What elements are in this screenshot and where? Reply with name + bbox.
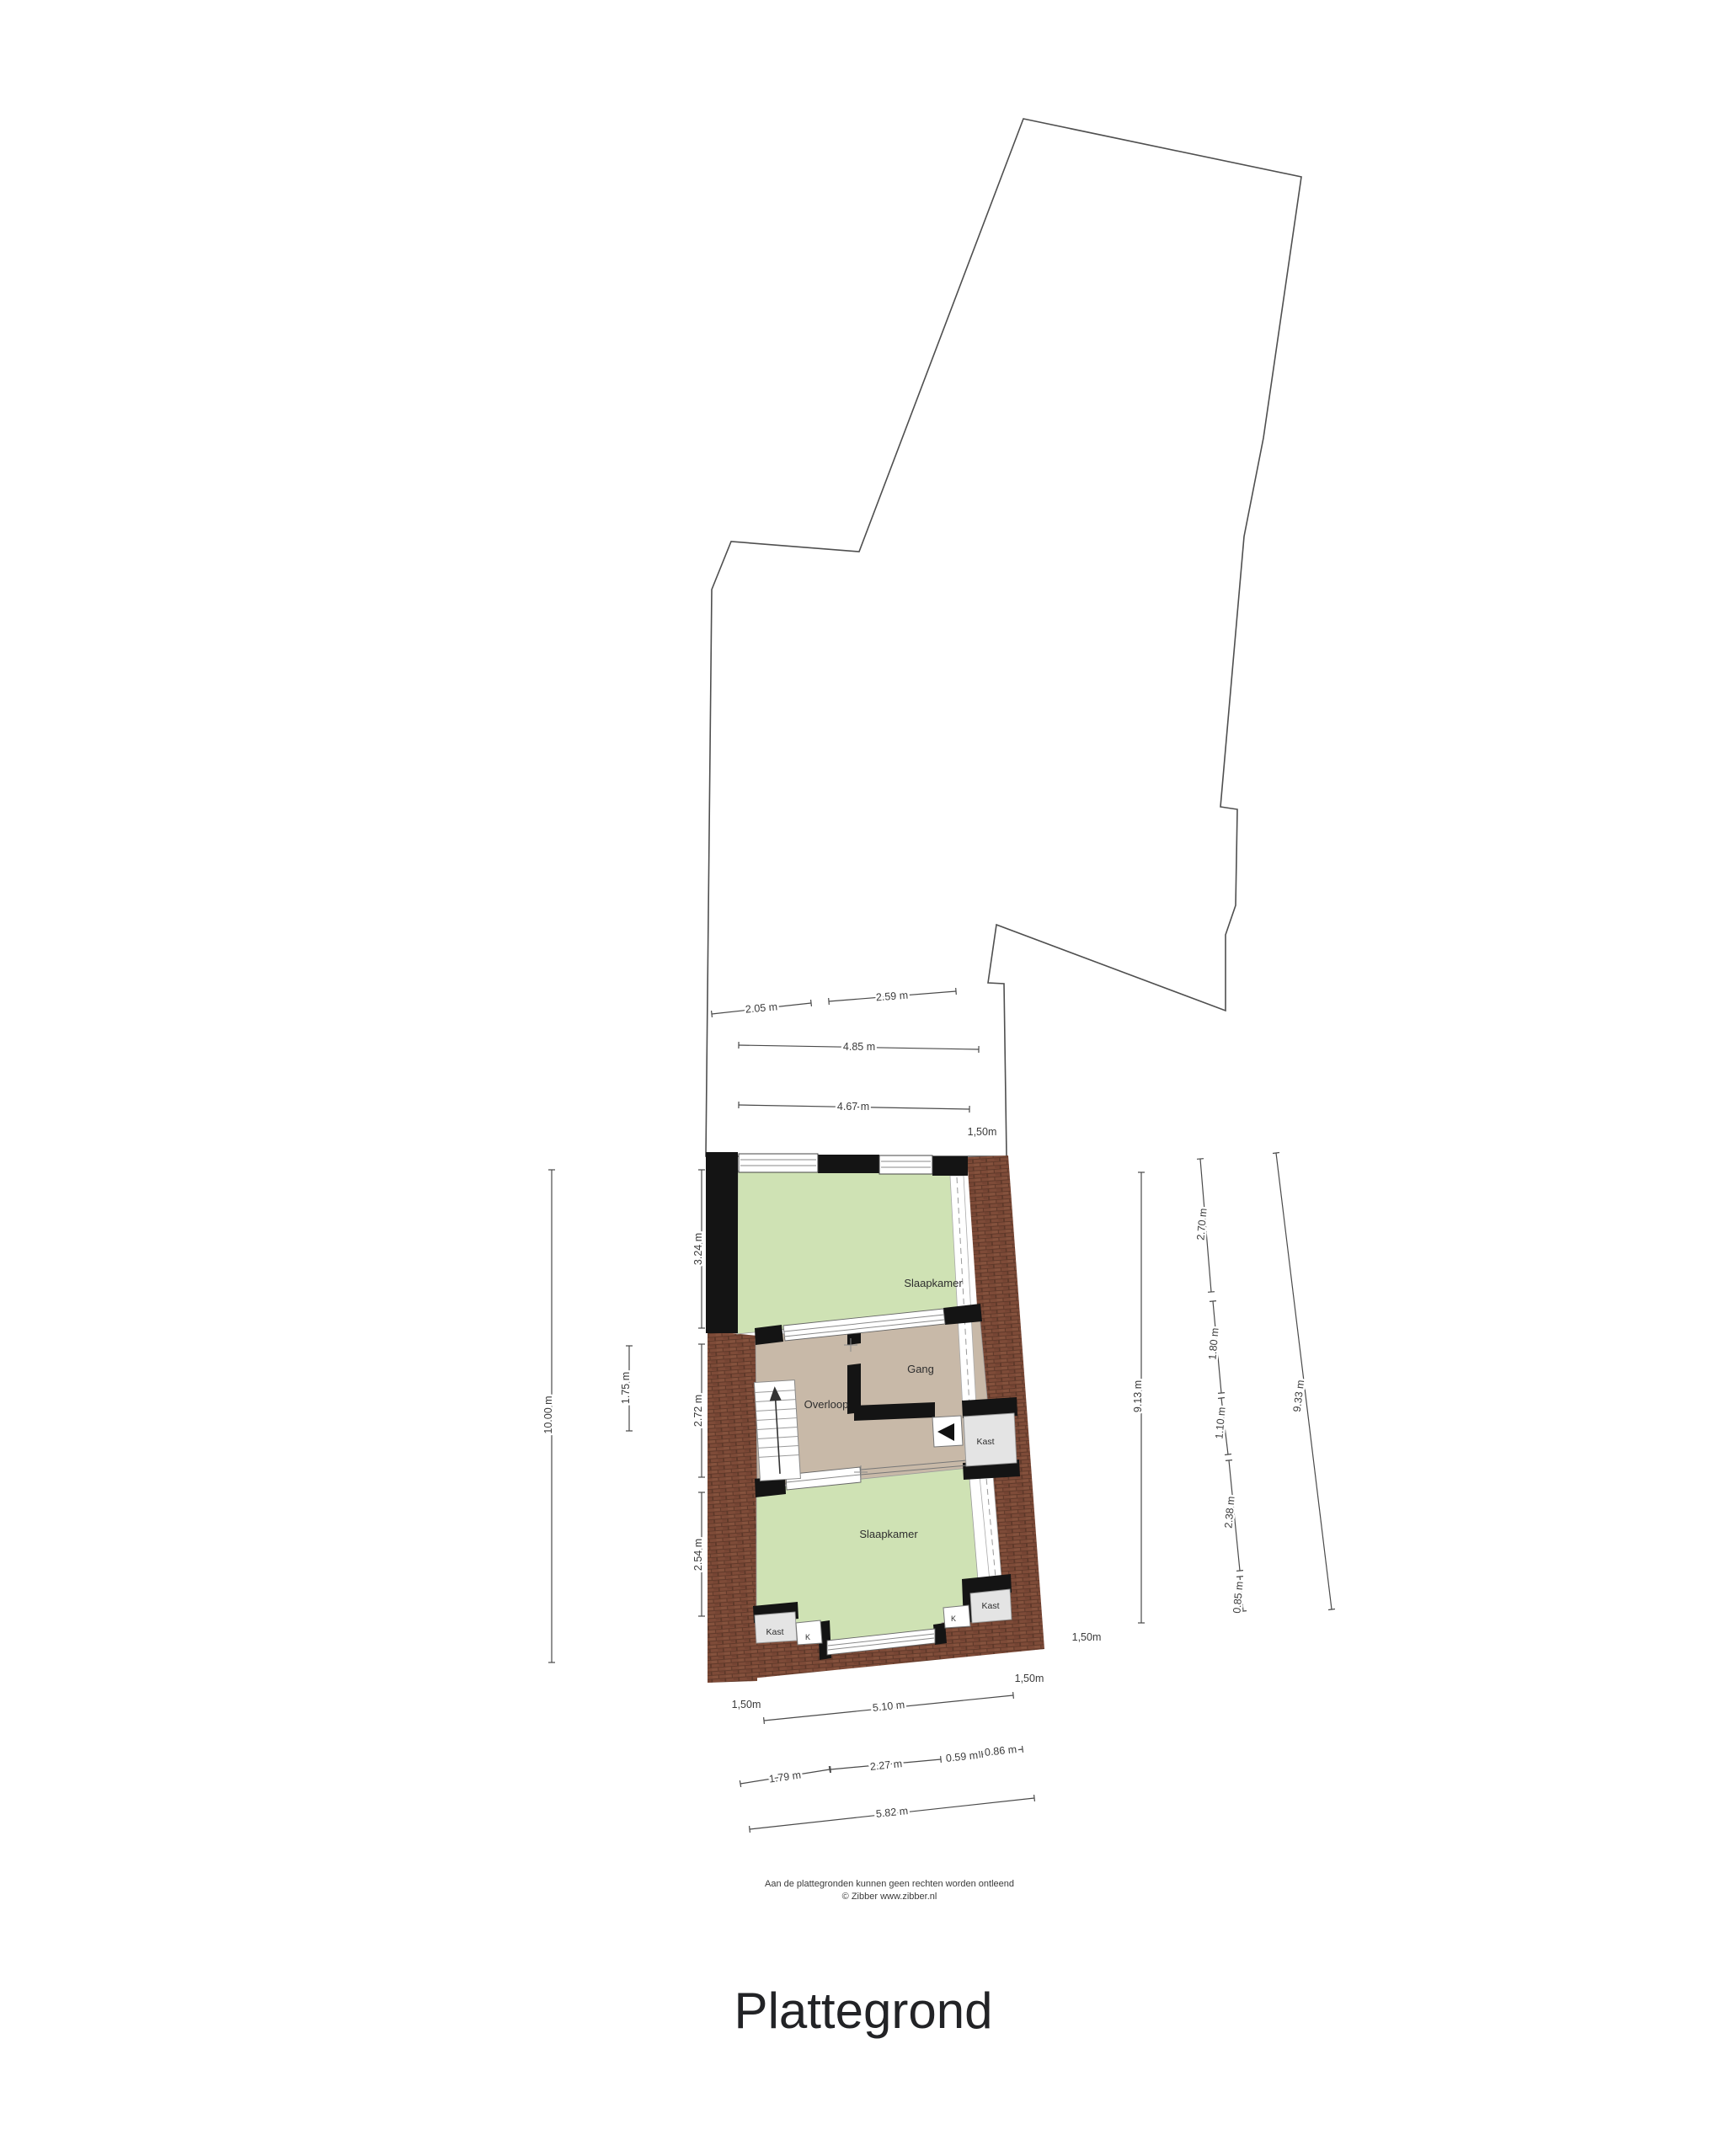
dim-label: 1.75 m [620,1372,632,1404]
floorplan-canvas: Slaapkamer Gang Overloop Kast Slaapkamer… [0,0,1725,2156]
dim-label: 2.27 m [869,1758,902,1773]
footer-disclaimer: Aan de plattegronden kunnen geen rechten… [765,1879,1014,1889]
dim-label: 1,50m [1015,1673,1044,1684]
dim-label: 1.79 m [768,1769,802,1785]
door-closet-br [943,1605,970,1628]
floorplan-page: Slaapkamer Gang Overloop Kast Slaapkamer… [0,0,1725,2156]
dim-label: 2.54 m [692,1539,704,1571]
room-label-kast-mid: Kast [976,1437,994,1447]
room-label-kast-br: Kast [981,1601,999,1611]
dim-label: 1,50m [732,1699,761,1710]
dim-label: 1.80 m [1206,1327,1220,1360]
room-label-overloop: Overloop [804,1398,849,1411]
dim-label: 9.33 m [1291,1380,1307,1413]
dim-label: 1,50m [1072,1631,1102,1643]
dim-label: 10.00 m [542,1396,554,1433]
dim-label: 4.67 m [837,1101,869,1113]
dim-label: 1,50m [968,1126,997,1138]
dim-label: 0.86 m [984,1743,1017,1758]
dim-label: 5.10 m [872,1699,905,1714]
building-plan: Slaapkamer Gang Overloop Kast Slaapkamer… [706,1152,1044,1683]
room-label-k-bl: K [805,1633,810,1641]
dim-label: 0.59 m [945,1749,978,1764]
dim-label: 9.13 m [1132,1380,1144,1412]
footer: Aan de plattegronden kunnen geen rechten… [765,1879,1014,1902]
dim-label: 4.85 m [843,1041,875,1053]
room-label-slaapkamer-top: Slaapkamer [904,1277,963,1289]
dim-label: 5.82 m [875,1805,908,1820]
room-label-kast-bl: Kast [766,1627,783,1637]
dim-label: 3.24 m [692,1233,704,1265]
footer-copyright: © Zibber www.zibber.nl [842,1892,937,1902]
room-label-k-br: K [951,1614,956,1623]
page-title: Plattegrond [734,1983,993,2039]
room-label-gang: Gang [907,1363,934,1375]
stairs [754,1380,800,1481]
dim-label: 2.72 m [692,1395,704,1427]
lot-outline [706,119,1301,1156]
dim-label: 2.59 m [875,990,908,1004]
bedroom-top-floor [737,1171,965,1334]
room-label-slaapkamer-bottom: Slaapkamer [859,1528,918,1540]
